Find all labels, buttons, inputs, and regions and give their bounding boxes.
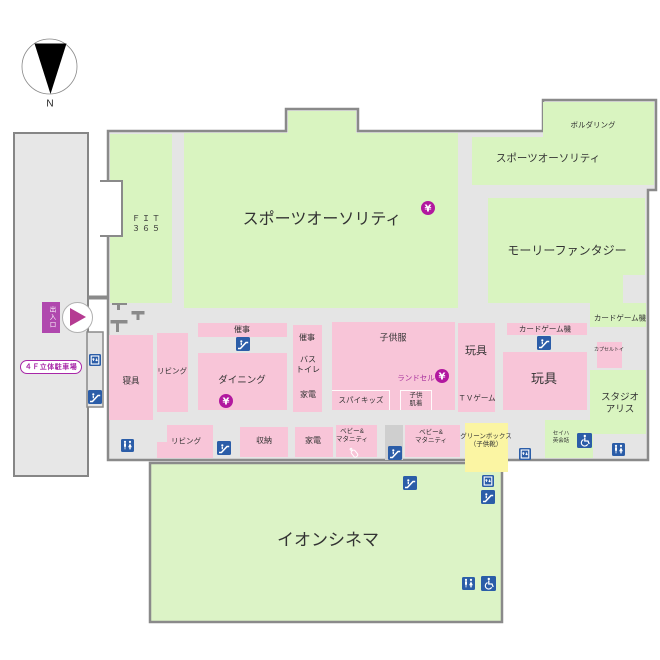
aeon-cinema-label: イオンシネマ [277, 529, 379, 550]
restroom-icon [612, 443, 625, 456]
entrance-arrow-triangle [70, 308, 86, 326]
kids-clothing-label: 子供服 [379, 332, 406, 343]
yen-icon: ¥ [219, 394, 233, 408]
elevator-icon [482, 475, 494, 487]
card-game-strip-label: カードゲーム機 [519, 324, 571, 333]
capsule-toy-label: カプセルトイ [594, 347, 624, 353]
entrance-badge: 出入口 [42, 302, 60, 333]
escalator-icon [537, 336, 551, 350]
living-lower-label: リビング [171, 436, 201, 445]
restroom-icon [462, 577, 475, 590]
seiha-english-label: セイハ英会話 [553, 431, 570, 445]
nursing-icon [347, 446, 361, 460]
parking-4f-badge: ４Ｆ立体駐車場 [20, 360, 82, 374]
wheelchair-icon [577, 433, 592, 448]
building-notch [100, 180, 123, 237]
toys-left-label: 玩具 [465, 345, 487, 359]
escalator-icon [236, 337, 250, 351]
svg-text:¥: ¥ [223, 397, 230, 408]
appliance-column-label: 家電 [300, 390, 316, 400]
escalator-icon [403, 476, 417, 490]
baby-maternity-1-label: ベビー&マタニティ [336, 428, 368, 444]
kids-underwear-label: 子供肌着 [410, 392, 423, 408]
compass-north-label: N [46, 99, 53, 110]
elevator-icon [89, 354, 101, 366]
svg-text:¥: ¥ [439, 372, 446, 383]
entrance-arrow-icon [62, 302, 93, 333]
sports-authority-upper-label: スポーツオーソリティ [496, 152, 600, 165]
escalator-icon [481, 490, 495, 504]
area-molly-notch [623, 275, 645, 303]
molly-fantasy-label: モーリーファンタジー [507, 244, 626, 259]
wheelchair-icon [481, 576, 496, 591]
bath-toilet-label: バストイレ [296, 355, 320, 375]
tv-game-label: ＴＶゲーム [458, 393, 495, 402]
escalator-icon [217, 441, 231, 455]
dining-label: ダイニング [218, 375, 266, 387]
randoseru-label: ランドセル [397, 373, 435, 382]
baby-maternity-2-label: ベビー&マタニティ [415, 429, 447, 445]
storage-label: 収納 [256, 436, 272, 446]
event-column-label: 催事 [299, 333, 315, 343]
escalator-icon [88, 390, 102, 404]
living-upper-label: リビング [157, 366, 187, 375]
yen-icon: ¥ [421, 201, 435, 215]
toys-big-label: 玩具 [531, 371, 557, 387]
restroom-icon [121, 439, 134, 452]
green-box-label: グリーンボックス（子供靴） [460, 433, 511, 449]
yen-icon: ¥ [435, 369, 449, 383]
elevator-icon [519, 448, 531, 460]
svg-text:¥: ¥ [425, 204, 432, 215]
escalator-icon [388, 446, 402, 460]
sports-authority-main-label: スポーツオーソリティ [243, 210, 402, 230]
compass-icon [22, 39, 77, 94]
spy-kids-label: スパイキッズ [339, 395, 384, 404]
event-strip-label: 催事 [234, 325, 250, 335]
area-bouldering [543, 102, 654, 185]
bouldering-label: ボルダリング [571, 120, 616, 129]
bedding-label: 寝具 [122, 376, 139, 387]
appliance-lower-label: 家電 [305, 436, 321, 446]
area-sports-authority-bump [288, 111, 356, 135]
fit365-label: ＦＩＴ３６５ [132, 214, 162, 234]
floor-map: スポーツオーソリティＦＩＴ３６５ボルダリングスポーツオーソリティモーリーファンタ… [0, 0, 660, 660]
studio-alice-label: スタジオアリス [601, 392, 639, 416]
card-game-right-label: カードゲーム機 [594, 313, 646, 322]
